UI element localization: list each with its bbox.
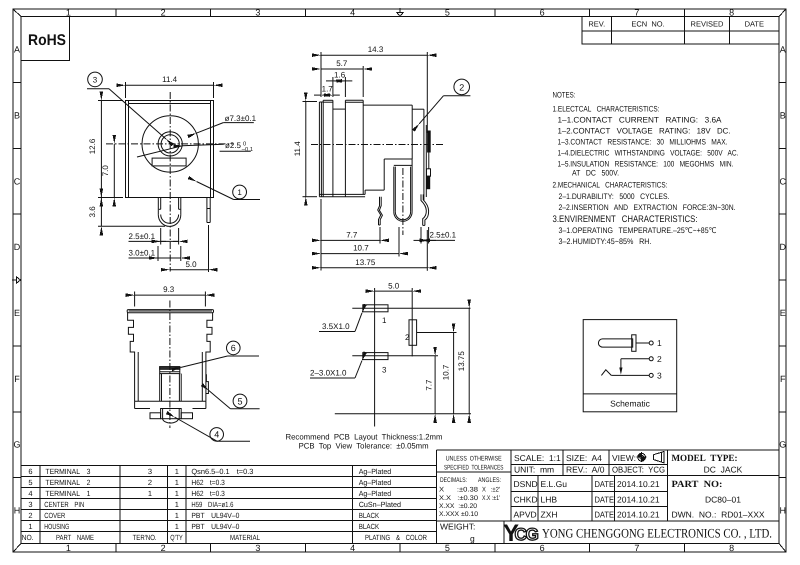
svg-text:A: A — [780, 45, 786, 55]
svg-text:DATE: DATE — [745, 20, 764, 29]
svg-text:BLACK: BLACK — [359, 511, 380, 520]
svg-text:DATE: DATE — [595, 479, 615, 489]
svg-text:1: 1 — [175, 511, 179, 520]
svg-text:H: H — [780, 506, 787, 516]
svg-text:2–1.DURABILITY: 5000 CYCLES.: 2–1.DURABILITY: 5000 CYCLES. — [559, 192, 670, 201]
svg-text:7.7: 7.7 — [425, 379, 434, 391]
svg-text:MODEL TYPE:: MODEL TYPE: — [672, 454, 738, 464]
svg-text:E: E — [780, 308, 786, 318]
svg-text:1: 1 — [148, 489, 152, 498]
svg-text:A: A — [14, 45, 20, 55]
svg-text:1: 1 — [175, 489, 179, 498]
svg-text:3.0±0.1: 3.0±0.1 — [129, 249, 156, 258]
svg-text:2: 2 — [405, 333, 410, 342]
svg-text:ECN NO.: ECN NO. — [631, 20, 664, 29]
svg-text:X :±0.38: X :±0.38 — [439, 487, 478, 494]
svg-text:7.0: 7.0 — [101, 165, 110, 177]
svg-text:1.ELECTCAL CHARACTERISTICS:: 1.ELECTCAL CHARACTERISTICS: — [553, 105, 660, 114]
svg-text:1–3.CONTACT RESISTANCE: 30: 1–3.CONTACT RESISTANCE: 30 MILLIOHMS MAX… — [558, 138, 728, 147]
svg-text:X.XXX ±0.10: X.XXX ±0.10 — [439, 511, 478, 518]
svg-text:4: 4 — [350, 543, 355, 553]
svg-text:10.7: 10.7 — [442, 364, 451, 380]
svg-text:AT DC 500V.: AT DC 500V. — [572, 169, 619, 178]
svg-text:UNIT: mm: UNIT: mm — [514, 464, 554, 474]
svg-text:F: F — [780, 374, 786, 384]
svg-text:2014.10.21: 2014.10.21 — [617, 510, 660, 520]
svg-text:3: 3 — [657, 371, 662, 381]
svg-text:Ag–Plated: Ag–Plated — [359, 478, 392, 487]
svg-text:ZXH: ZXH — [541, 510, 558, 520]
svg-text:2: 2 — [28, 511, 32, 520]
svg-text:D: D — [14, 242, 21, 252]
svg-text:3: 3 — [93, 76, 98, 85]
svg-text:CG: CG — [515, 525, 539, 544]
svg-text:TERMINAL 3: TERMINAL 3 — [45, 467, 90, 476]
svg-text:NOTES:: NOTES: — [553, 91, 576, 100]
svg-text:TERMINAL 1: TERMINAL 1 — [45, 489, 90, 498]
svg-text:5.0: 5.0 — [185, 260, 197, 269]
svg-text:1–5.INSULATION RESISTANCE: 1: 1–5.INSULATION RESISTANCE: 100 MEGOHMS M… — [558, 160, 734, 169]
svg-text:1–2.CONTACT VOLTAGE RATING:: 1–2.CONTACT VOLTAGE RATING: 18V DC. — [558, 127, 731, 136]
svg-text:PBT UL94V–0: PBT UL94V–0 — [191, 511, 239, 520]
svg-text:5.7: 5.7 — [336, 59, 348, 68]
svg-text:WEIGHT:: WEIGHT: — [440, 522, 475, 532]
svg-text:TER'NO.: TER'NO. — [133, 533, 157, 542]
svg-text:3: 3 — [255, 8, 260, 18]
svg-text:1: 1 — [175, 467, 179, 476]
svg-text:1: 1 — [66, 543, 71, 553]
svg-text:CHKD: CHKD — [514, 494, 538, 504]
svg-text:12.6: 12.6 — [88, 138, 97, 154]
svg-text:Qsn6.5–0.1 t=0.3: Qsn6.5–0.1 t=0.3 — [191, 467, 253, 476]
svg-text:BLACK: BLACK — [359, 522, 380, 531]
svg-text:4: 4 — [350, 8, 355, 18]
svg-text:D: D — [780, 242, 787, 252]
svg-text:PART NAME: PART NAME — [56, 533, 94, 542]
svg-text:C: C — [14, 176, 21, 186]
svg-text:COVER: COVER — [44, 511, 65, 520]
svg-text:PCB Top View Tolerance: ±0: PCB Top View Tolerance: ±0.05mm — [299, 441, 429, 450]
svg-text:PART NO:: PART NO: — [672, 480, 723, 490]
svg-text:1: 1 — [657, 338, 662, 348]
svg-text:X.X :±1': X.X :±1' — [482, 495, 500, 502]
svg-text:B: B — [14, 110, 20, 120]
svg-text:2.5±0.1: 2.5±0.1 — [129, 232, 156, 241]
svg-text:2: 2 — [459, 82, 464, 92]
svg-text:REVISED: REVISED — [691, 20, 725, 29]
svg-text:H62 t=0.3: H62 t=0.3 — [191, 489, 225, 498]
svg-text:2.5±0.1: 2.5±0.1 — [430, 230, 457, 239]
svg-text:SCALE: 1:1: SCALE: 1:1 — [514, 453, 561, 463]
svg-text:B: B — [780, 110, 786, 120]
svg-text:ANGLES:: ANGLES: — [478, 477, 501, 484]
svg-text:DC JACK: DC JACK — [704, 464, 743, 474]
svg-text:5: 5 — [28, 478, 32, 487]
svg-text:9.3: 9.3 — [163, 285, 175, 294]
svg-text:1.7: 1.7 — [322, 85, 334, 94]
svg-text:DATE: DATE — [595, 510, 615, 520]
svg-text:6: 6 — [540, 543, 545, 553]
svg-text:SIZE: A4: SIZE: A4 — [566, 453, 602, 463]
svg-text:10.7: 10.7 — [353, 244, 369, 253]
svg-text:1–1.CONTACT CURRENT RATING:: 1–1.CONTACT CURRENT RATING: 3.6A — [558, 116, 723, 125]
svg-text:8: 8 — [729, 543, 734, 553]
svg-text:PLATING & COLOR: PLATING & COLOR — [365, 533, 427, 542]
svg-text:REV.: REV. — [588, 20, 605, 29]
svg-text:TERMINAL 2: TERMINAL 2 — [45, 478, 90, 487]
svg-text:3–2.HUMIDTY:45~85% RH.: 3–2.HUMIDTY:45~85% RH. — [559, 237, 652, 246]
svg-text:1: 1 — [237, 188, 242, 197]
svg-text:DATE: DATE — [595, 494, 615, 504]
svg-text:3: 3 — [382, 366, 387, 375]
svg-text:2: 2 — [148, 478, 152, 487]
svg-text:2014.10.21: 2014.10.21 — [617, 494, 660, 504]
svg-text:Ag–Plated: Ag–Plated — [359, 489, 392, 498]
svg-text:H59 DIA=ø1.6: H59 DIA=ø1.6 — [191, 500, 233, 509]
svg-text:G: G — [13, 440, 20, 450]
svg-text:3–1.OPERATING TEMPERATURE.–25: 3–1.OPERATING TEMPERATURE.–25℃~+85℃ — [559, 226, 717, 235]
svg-text:6: 6 — [540, 8, 545, 18]
svg-text:DWN. NO.: RD01–XXX: DWN. NO.: RD01–XXX — [672, 510, 765, 520]
svg-text:Q'TY: Q'TY — [170, 533, 183, 542]
svg-text:E: E — [14, 308, 20, 318]
svg-text:5: 5 — [237, 396, 242, 406]
svg-text:H62 t=0.3: H62 t=0.3 — [191, 478, 225, 487]
svg-text:Schematic: Schematic — [610, 399, 650, 409]
svg-text:LHB: LHB — [541, 494, 558, 504]
svg-text:ø7.3±0.1: ø7.3±0.1 — [225, 114, 257, 123]
svg-text:X.XX :±0.20: X.XX :±0.20 — [439, 503, 477, 510]
svg-text:13.75: 13.75 — [355, 258, 376, 267]
svg-text:DSND: DSND — [514, 479, 538, 489]
svg-text:4: 4 — [214, 430, 219, 440]
svg-text:UNLESS OTHERWISE: UNLESS OTHERWISE — [446, 456, 502, 463]
svg-text:1: 1 — [175, 478, 179, 487]
svg-text:HOUSING: HOUSING — [44, 522, 69, 531]
svg-text:NO.: NO. — [22, 533, 34, 542]
svg-text:2: 2 — [161, 8, 166, 18]
svg-text:1: 1 — [175, 522, 179, 531]
svg-text:–0.1: –0.1 — [242, 146, 253, 153]
svg-text:14.3: 14.3 — [368, 45, 384, 54]
svg-text:2.MECHANICAL CHARACTERISTICS:: 2.MECHANICAL CHARACTERISTICS: — [553, 181, 668, 190]
svg-text:5.0: 5.0 — [388, 282, 400, 291]
svg-text:X.X :±0.30: X.X :±0.30 — [439, 495, 478, 502]
svg-text:5: 5 — [445, 8, 450, 18]
svg-text:3: 3 — [255, 543, 260, 553]
svg-text:VIEW:: VIEW: — [612, 453, 636, 463]
svg-text:CENTER PIN: CENTER PIN — [44, 500, 84, 509]
svg-text:Ag–Plated: Ag–Plated — [359, 467, 392, 476]
svg-text:3.ENVIRENMENT CHARACTERISTICS: 3.ENVIRENMENT CHARACTERISTICS: — [553, 214, 698, 225]
svg-text:PBT UL94V–0: PBT UL94V–0 — [191, 522, 239, 531]
svg-text:SPECIFIED TOLERANCES: SPECIFIED TOLERANCES — [444, 465, 504, 472]
svg-text:2: 2 — [657, 354, 662, 364]
svg-text:7.7: 7.7 — [346, 230, 358, 239]
svg-text:1: 1 — [382, 316, 387, 325]
svg-text:C: C — [780, 176, 787, 186]
svg-text:g: g — [470, 534, 475, 544]
svg-text:13.75: 13.75 — [457, 351, 466, 372]
svg-text:11.4: 11.4 — [293, 141, 302, 157]
svg-text:G: G — [779, 440, 786, 450]
svg-text:F: F — [14, 374, 20, 384]
svg-text:Recommend PCB Layout Thickn: Recommend PCB Layout Thickness:1.2mm — [286, 432, 443, 441]
svg-text:11.4: 11.4 — [162, 75, 178, 84]
svg-text:3: 3 — [28, 500, 32, 509]
svg-text:1: 1 — [28, 522, 32, 531]
svg-text:ø2.5: ø2.5 — [225, 141, 242, 150]
svg-text:3: 3 — [148, 467, 152, 476]
svg-text:RoHS: RoHS — [28, 32, 66, 49]
svg-text:H: H — [14, 506, 21, 516]
svg-text:X :±2': X :±2' — [482, 487, 500, 494]
svg-text:MATERIAL: MATERIAL — [230, 533, 260, 542]
svg-text:1: 1 — [175, 500, 179, 509]
svg-text:2: 2 — [161, 543, 166, 553]
svg-text:2–2.INSERTION AND EXTRACTION: 2–2.INSERTION AND EXTRACTION FORCE:3N~30… — [559, 203, 736, 212]
svg-text:E.L.Gu: E.L.Gu — [541, 479, 568, 489]
svg-text:1.6: 1.6 — [334, 71, 346, 80]
svg-text:5: 5 — [445, 543, 450, 553]
svg-text:DC80–01: DC80–01 — [705, 494, 741, 504]
svg-text:3.5X1.0: 3.5X1.0 — [322, 322, 350, 331]
svg-text:YONG CHENGGONG ELECTRONICS CO.: YONG CHENGGONG ELECTRONICS CO. , LTD. — [542, 526, 772, 541]
svg-text:7: 7 — [634, 543, 639, 553]
svg-text:3.6: 3.6 — [88, 206, 97, 218]
svg-text:6: 6 — [28, 467, 32, 476]
svg-text:DECIMALS:: DECIMALS: — [440, 477, 467, 484]
svg-text:CuSn–Plated: CuSn–Plated — [359, 500, 401, 509]
svg-text:REV.: A/0: REV.: A/0 — [566, 464, 605, 474]
svg-text:APVD: APVD — [514, 510, 537, 520]
svg-text:4: 4 — [28, 489, 32, 498]
svg-text:2–3.0X1.0: 2–3.0X1.0 — [310, 369, 347, 378]
svg-text:1–4.DIELECTRIC WITHSTANDING: 1–4.DIELECTRIC WITHSTANDING VOLTAGE: 500… — [558, 149, 739, 158]
svg-text:2014.10.21: 2014.10.21 — [617, 479, 660, 489]
svg-text:6: 6 — [231, 343, 236, 353]
svg-text:OBJECT: YCG: OBJECT: YCG — [612, 464, 665, 474]
